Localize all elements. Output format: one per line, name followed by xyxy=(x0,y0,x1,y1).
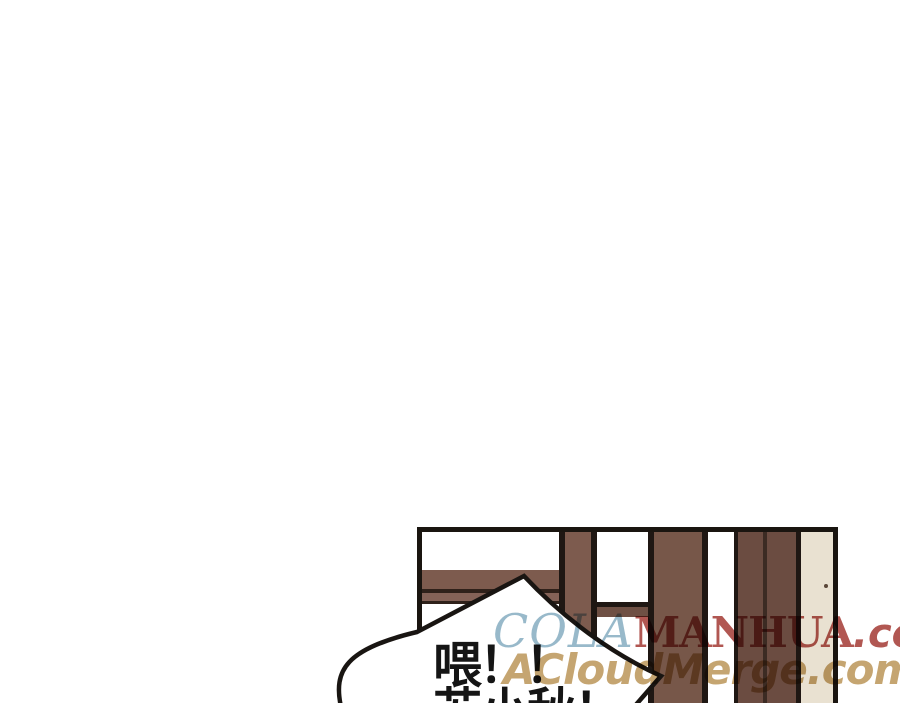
door-dot xyxy=(824,584,828,588)
watermark-acloudmerge: ACloudMerge.com xyxy=(503,649,900,691)
comic-page: 喂！！ 苏小秋！ COLAMANHUA.com ACloudMerge.com xyxy=(0,0,900,703)
